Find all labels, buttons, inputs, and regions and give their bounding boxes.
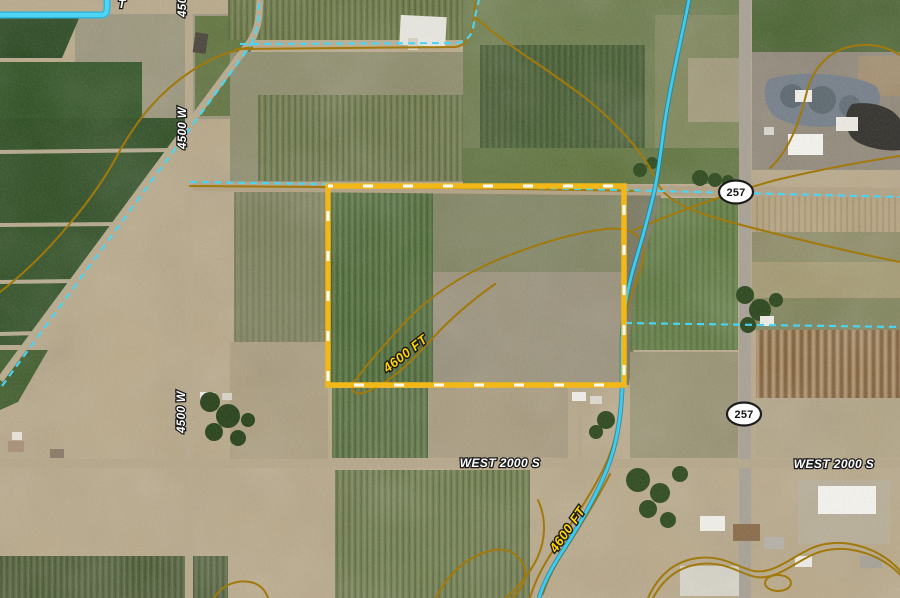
- imagery-grain: [0, 0, 900, 598]
- road-label-4500w-top-partial: 4500 W: [177, 0, 189, 18]
- route-shield-257-north: 257: [719, 181, 753, 204]
- road-label-west-2000-s-right: WEST 2000 S: [794, 457, 874, 471]
- road-label-4500w-upper: 4500 W: [177, 106, 189, 150]
- canal-label-partial: T: [118, 0, 127, 11]
- map-canvas[interactable]: 4500 W 4500 W 4500 W WEST 2000 S WEST 20…: [0, 0, 900, 598]
- map-viewport[interactable]: 4500 W 4500 W 4500 W WEST 2000 S WEST 20…: [0, 0, 900, 598]
- route-shield-257-south: 257: [727, 403, 761, 426]
- road-label-west-2000-s-center: WEST 2000 S: [460, 456, 540, 470]
- route-shield-257-south-text: 257: [735, 409, 754, 421]
- road-label-4500w-lower: 4500 W: [176, 390, 188, 434]
- route-shield-257-north-text: 257: [727, 187, 746, 199]
